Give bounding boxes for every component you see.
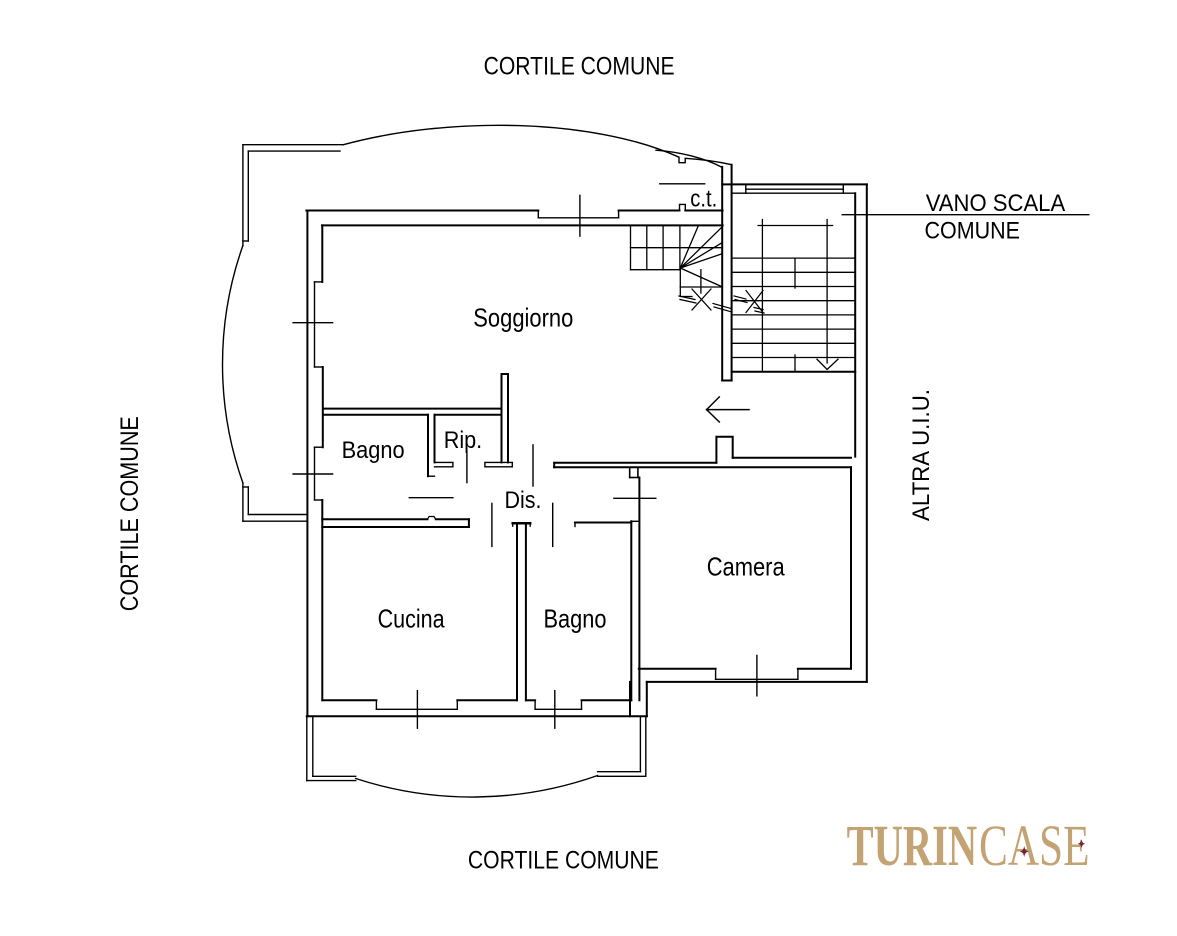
svg-text:Cucina: Cucina bbox=[378, 604, 445, 634]
svg-text:Bagno: Bagno bbox=[544, 604, 607, 634]
svg-text:VANO SCALA: VANO SCALA bbox=[926, 190, 1065, 217]
svg-text:COMUNE: COMUNE bbox=[925, 217, 1021, 244]
svg-text:CORTILE COMUNE: CORTILE COMUNE bbox=[468, 847, 659, 875]
svg-text:Rip.: Rip. bbox=[444, 427, 483, 454]
svg-text:Bagno: Bagno bbox=[342, 437, 405, 464]
svg-text:Camera: Camera bbox=[707, 552, 785, 582]
svg-text:Dis.: Dis. bbox=[505, 487, 542, 514]
svg-text:CORTILE COMUNE: CORTILE COMUNE bbox=[484, 53, 675, 81]
svg-text:Soggiorno: Soggiorno bbox=[473, 302, 573, 332]
svg-text:CORTILE COMUNE: CORTILE COMUNE bbox=[116, 416, 144, 611]
svg-text:c.t.: c.t. bbox=[690, 186, 717, 213]
svg-text:ALTRA U.I.U.: ALTRA U.I.U. bbox=[908, 389, 935, 521]
svg-text:CASE: CASE bbox=[979, 813, 1090, 878]
svg-text:TURIN: TURIN bbox=[847, 813, 978, 878]
